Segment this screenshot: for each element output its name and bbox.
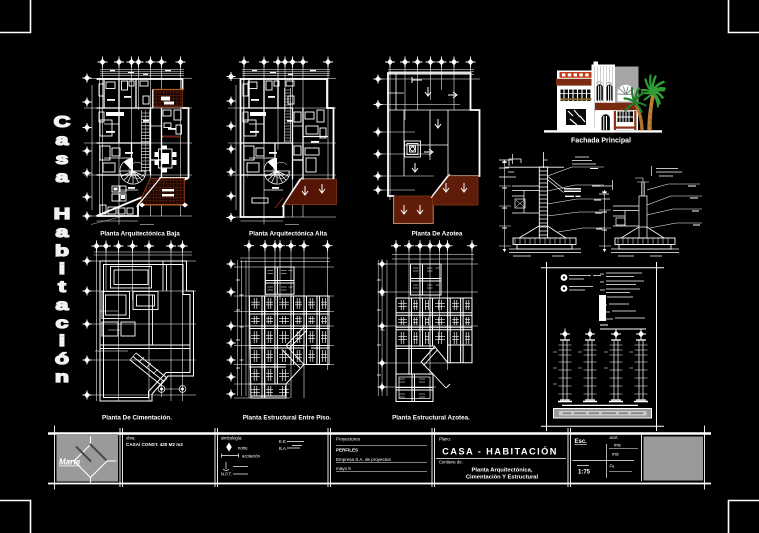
svg-text:1:75: 1:75 xyxy=(578,470,591,476)
svg-text:CASA - HABITACIÓN: CASA - HABITACIÓN xyxy=(442,446,558,457)
svg-text:Planta Estructural Entre Piso.: Planta Estructural Entre Piso. xyxy=(243,415,332,422)
svg-text:Planta Arquitectónica,: Planta Arquitectónica, xyxy=(472,468,533,474)
svg-text:acot.: acot. xyxy=(610,435,619,440)
svg-text:simbología:: simbología: xyxy=(221,436,242,441)
svg-text:acotación: acotación xyxy=(242,454,261,459)
svg-text:Planta De Azotea: Planta De Azotea xyxy=(412,231,463,238)
svg-text:Planta Arquitectónica Baja: Planta Arquitectónica Baja xyxy=(100,231,180,238)
svg-text:i: i xyxy=(59,260,65,278)
svg-text:Planta De Cimentación.: Planta De Cimentación. xyxy=(102,415,172,422)
svg-text:H: H xyxy=(54,205,71,223)
svg-text:Contiene de:: Contiene de: xyxy=(439,460,463,465)
svg-text:Fe.: Fe. xyxy=(610,464,616,469)
svg-text:a: a xyxy=(56,131,70,149)
svg-text:C: C xyxy=(54,113,71,131)
svg-text:Plano:: Plano: xyxy=(439,437,451,442)
svg-text:a: a xyxy=(56,168,70,186)
svg-text:a: a xyxy=(56,296,70,314)
svg-text:s: s xyxy=(56,150,69,168)
svg-text:Planta Estructural Azotea.: Planta Estructural Azotea. xyxy=(392,415,470,422)
svg-text:t: t xyxy=(58,278,66,296)
svg-text:obra:: obra: xyxy=(126,436,136,441)
svg-text:Empresa S.A. de proyectos: Empresa S.A. de proyectos xyxy=(336,457,392,462)
svg-text:ó: ó xyxy=(55,350,69,368)
svg-text:PERFILES: PERFILES xyxy=(336,448,358,453)
svg-text:E.E.: E.E. xyxy=(279,439,287,444)
svg-text:B.A.: B.A. xyxy=(279,446,287,451)
svg-text:n: n xyxy=(55,368,69,386)
svg-text:Esc.: Esc. xyxy=(575,439,588,445)
svg-text:c: c xyxy=(56,314,69,332)
svg-text:i: i xyxy=(59,332,65,350)
svg-text:N.P.T.: N.P.T. xyxy=(221,472,232,477)
svg-text:norte: norte xyxy=(238,446,248,451)
svg-text:b: b xyxy=(55,242,69,260)
svg-text:Planta Arquitectónica Alta: Planta Arquitectónica Alta xyxy=(249,231,327,238)
svg-text:mts: mts xyxy=(614,443,621,448)
svg-text:CASA/ CONST. 420 M2 m2: CASA/ CONST. 420 M2 m2 xyxy=(126,442,183,447)
svg-text:a: a xyxy=(56,223,70,241)
svg-text:mts: mts xyxy=(612,452,619,457)
svg-text:mayo 5: mayo 5 xyxy=(336,466,351,471)
svg-text:Cimentación Y Estructural: Cimentación Y Estructural xyxy=(466,475,539,481)
svg-text:Fachada Principal: Fachada Principal xyxy=(571,138,631,145)
svg-text:Marte: Marte xyxy=(59,458,81,467)
svg-text:Proyectores: Proyectores xyxy=(336,437,361,442)
